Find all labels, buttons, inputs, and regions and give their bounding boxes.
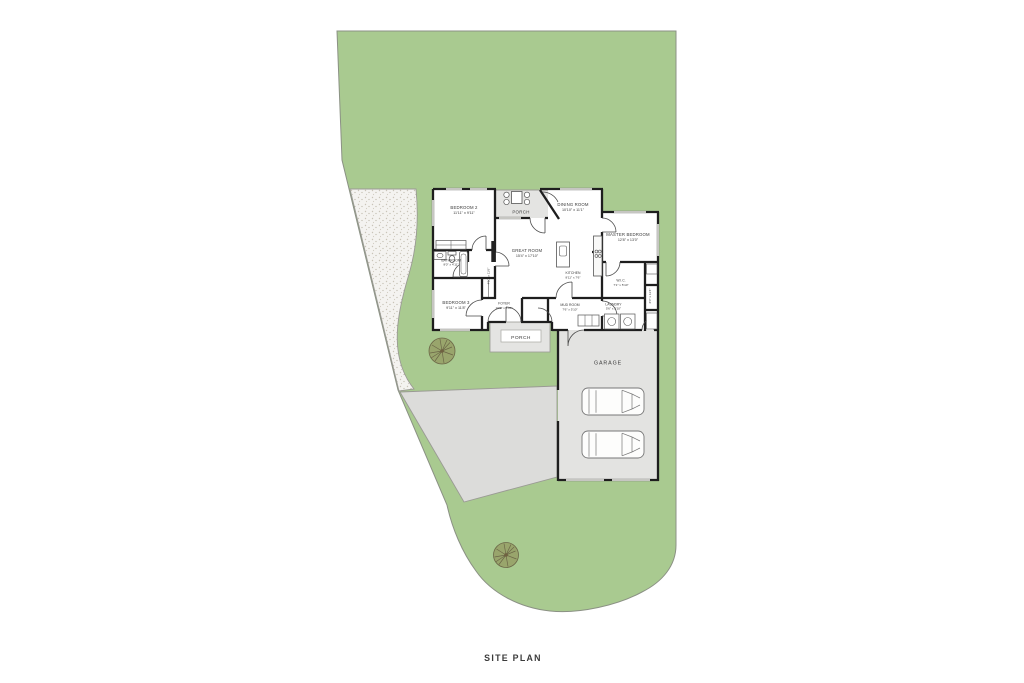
porch-bottom-label: PORCH	[511, 335, 531, 341]
great-dims: 15'4" x 17'10"	[516, 254, 539, 258]
dryer	[621, 314, 636, 329]
washer	[605, 314, 620, 329]
site-plan-drawing: BEDROOM 2 11'11" x 9'11" PORCH DINING RO…	[0, 0, 1024, 683]
porch-table	[512, 192, 523, 204]
bedroom3-dims: 9'11" x 11'8"	[446, 306, 466, 310]
fireplace	[491, 241, 496, 262]
foyer-label: FOYER	[498, 302, 510, 306]
wic-dims: 7'1" x 5'10"	[613, 283, 628, 287]
tub	[460, 252, 468, 277]
master-dims: 12'8" x 13'0"	[618, 238, 639, 242]
wic-label: W.I.C.	[616, 279, 625, 283]
porch-chair	[504, 192, 509, 197]
porch-top-label: PORCH	[512, 210, 529, 215]
bedroom2-dims: 11'11" x 9'11"	[453, 211, 475, 215]
laundry-dims: 5'6" x 5'10"	[606, 307, 621, 311]
tree-upper	[429, 338, 455, 364]
porch-chair	[504, 199, 509, 204]
dining-dims: 10'10" x 11'1"	[562, 208, 585, 212]
site-plan-page: BEDROOM 2 11'11" x 9'11" PORCH DINING RO…	[0, 0, 1024, 683]
mudroom-bench	[578, 315, 599, 326]
porch-chair	[524, 199, 529, 204]
bathroom-dims: 8'0" x 4'11"	[443, 263, 458, 267]
car-2	[582, 431, 644, 458]
bedroom2-label: BEDROOM 2	[450, 205, 478, 210]
master-label: MASTER BEDROOM	[606, 232, 650, 237]
closet-dims: 2'0" x 11'4"	[648, 288, 652, 303]
hall-dims: 4'10" x 11'6"	[487, 268, 491, 285]
porch-chair	[524, 192, 529, 197]
mudroom-dims: 7'6" x 5'10"	[562, 308, 577, 312]
car-1	[582, 388, 644, 415]
tree-lower	[494, 543, 519, 568]
kitchen-label: KITCHEN	[566, 271, 581, 275]
page-title: SITE PLAN	[484, 653, 542, 663]
great-label: GREAT ROOM	[512, 248, 543, 253]
bedroom3-label: BEDROOM 3	[442, 300, 470, 305]
toilet-tank	[448, 252, 456, 256]
kitchen-dims: 8'11" x 7'6"	[565, 276, 580, 280]
mudroom-label: MUD ROOM	[560, 303, 579, 307]
foyer-dims: 10'6" x 5'10"	[496, 306, 513, 310]
dining-label: DINING ROOM	[557, 202, 589, 207]
garage-label: GARAGE	[594, 361, 622, 367]
